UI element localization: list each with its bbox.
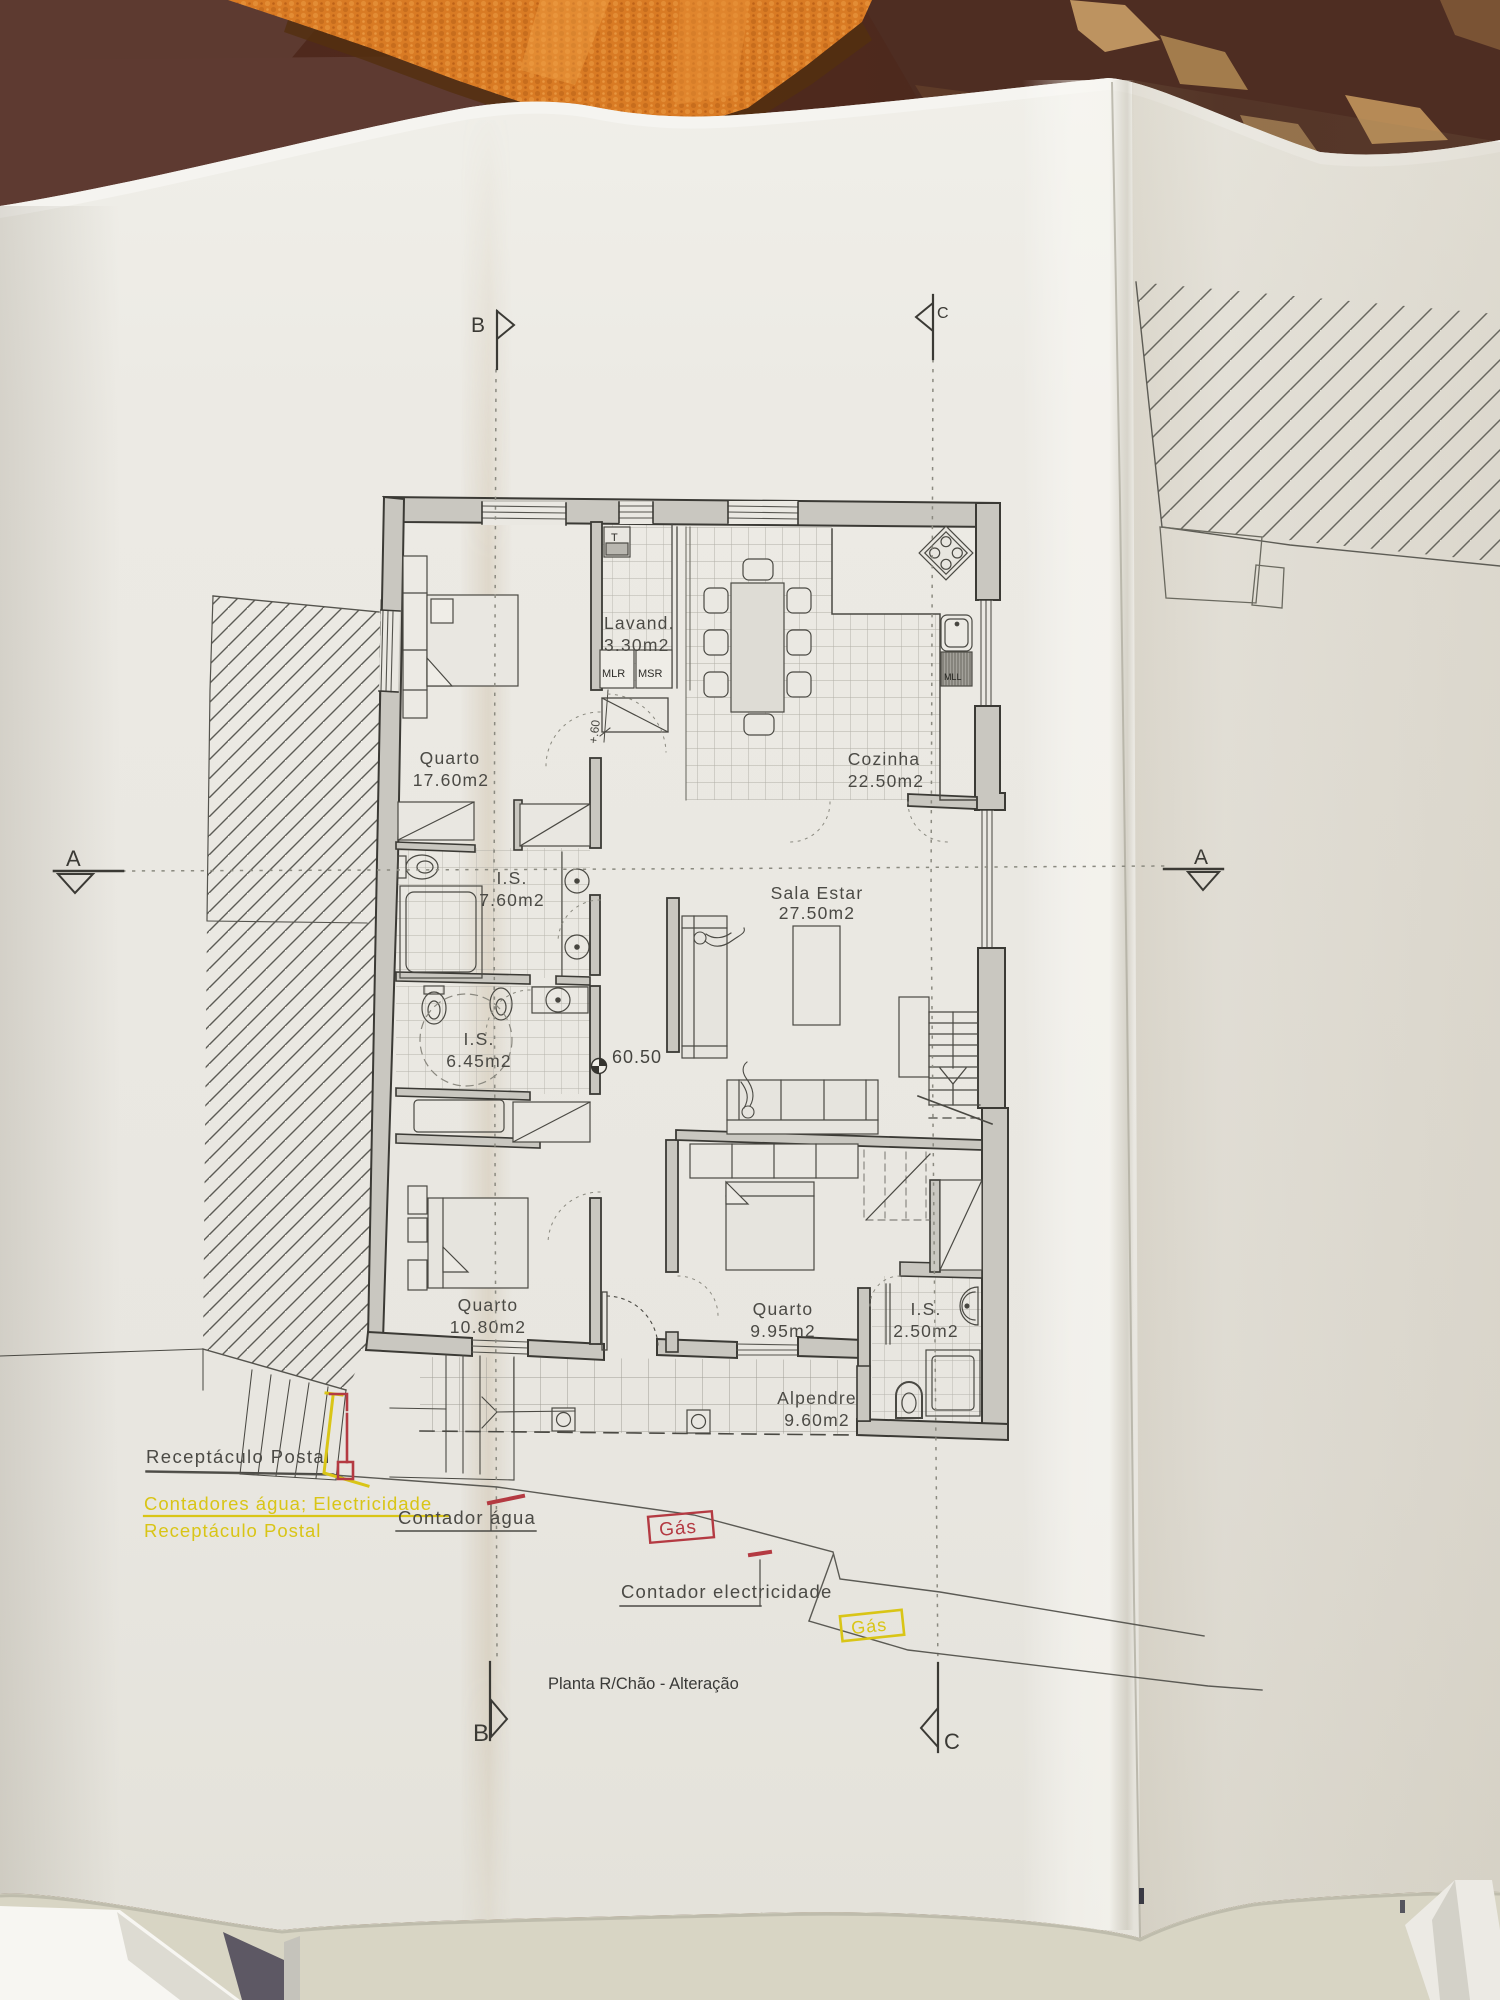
svg-text:B: B bbox=[471, 314, 485, 337]
svg-text:3.30m2: 3.30m2 bbox=[604, 635, 670, 655]
svg-text:60.50: 60.50 bbox=[612, 1047, 662, 1067]
svg-text:A: A bbox=[66, 846, 81, 871]
svg-text:Receptáculo Postal: Receptáculo Postal bbox=[144, 1520, 321, 1541]
svg-text:MSR: MSR bbox=[638, 668, 663, 680]
svg-text:Cozinha: Cozinha bbox=[848, 749, 921, 769]
svg-text:I.S.: I.S. bbox=[910, 1299, 941, 1319]
svg-text:17.60m2: 17.60m2 bbox=[413, 770, 490, 790]
svg-text:9.60m2: 9.60m2 bbox=[784, 1410, 850, 1430]
svg-text:Quarto: Quarto bbox=[753, 1299, 814, 1319]
svg-text:Gás: Gás bbox=[850, 1614, 888, 1638]
svg-text:Planta R/Chão - Alteração: Planta R/Chão - Alteração bbox=[548, 1675, 739, 1693]
svg-text:Sala Estar: Sala Estar bbox=[771, 883, 864, 903]
svg-text:T: T bbox=[611, 532, 618, 544]
svg-text:7.60m2: 7.60m2 bbox=[479, 890, 545, 910]
svg-text:MLR: MLR bbox=[602, 668, 625, 680]
svg-text:C: C bbox=[944, 1729, 960, 1754]
svg-text:C: C bbox=[937, 305, 949, 322]
svg-text:27.50m2: 27.50m2 bbox=[779, 903, 856, 923]
svg-text:Contador electricidade: Contador electricidade bbox=[621, 1581, 833, 1602]
svg-text:Quarto: Quarto bbox=[420, 748, 481, 768]
svg-text:Lavand.: Lavand. bbox=[604, 613, 675, 633]
svg-text:Contadores água; Electricidade: Contadores água; Electricidade bbox=[144, 1493, 432, 1514]
svg-text:+.60: +.60 bbox=[586, 719, 603, 745]
svg-text:6.45m2: 6.45m2 bbox=[446, 1051, 512, 1071]
svg-text:A: A bbox=[1194, 846, 1208, 869]
svg-text:Receptáculo Postal: Receptáculo Postal bbox=[146, 1446, 331, 1467]
svg-text:Quarto: Quarto bbox=[458, 1295, 519, 1315]
svg-text:I.S.: I.S. bbox=[496, 868, 527, 888]
svg-text:Gás: Gás bbox=[658, 1517, 698, 1541]
svg-text:9.95m2: 9.95m2 bbox=[750, 1321, 816, 1341]
svg-text:Contador água: Contador água bbox=[398, 1507, 536, 1528]
svg-text:Alpendre: Alpendre bbox=[777, 1388, 857, 1408]
svg-text:22.50m2: 22.50m2 bbox=[848, 771, 925, 791]
svg-text:10.80m2: 10.80m2 bbox=[450, 1317, 527, 1337]
svg-text:I.S.: I.S. bbox=[463, 1029, 494, 1049]
svg-text:MLL: MLL bbox=[944, 672, 962, 682]
svg-text:2.50m2: 2.50m2 bbox=[893, 1321, 959, 1341]
svg-text:B: B bbox=[473, 1720, 489, 1747]
